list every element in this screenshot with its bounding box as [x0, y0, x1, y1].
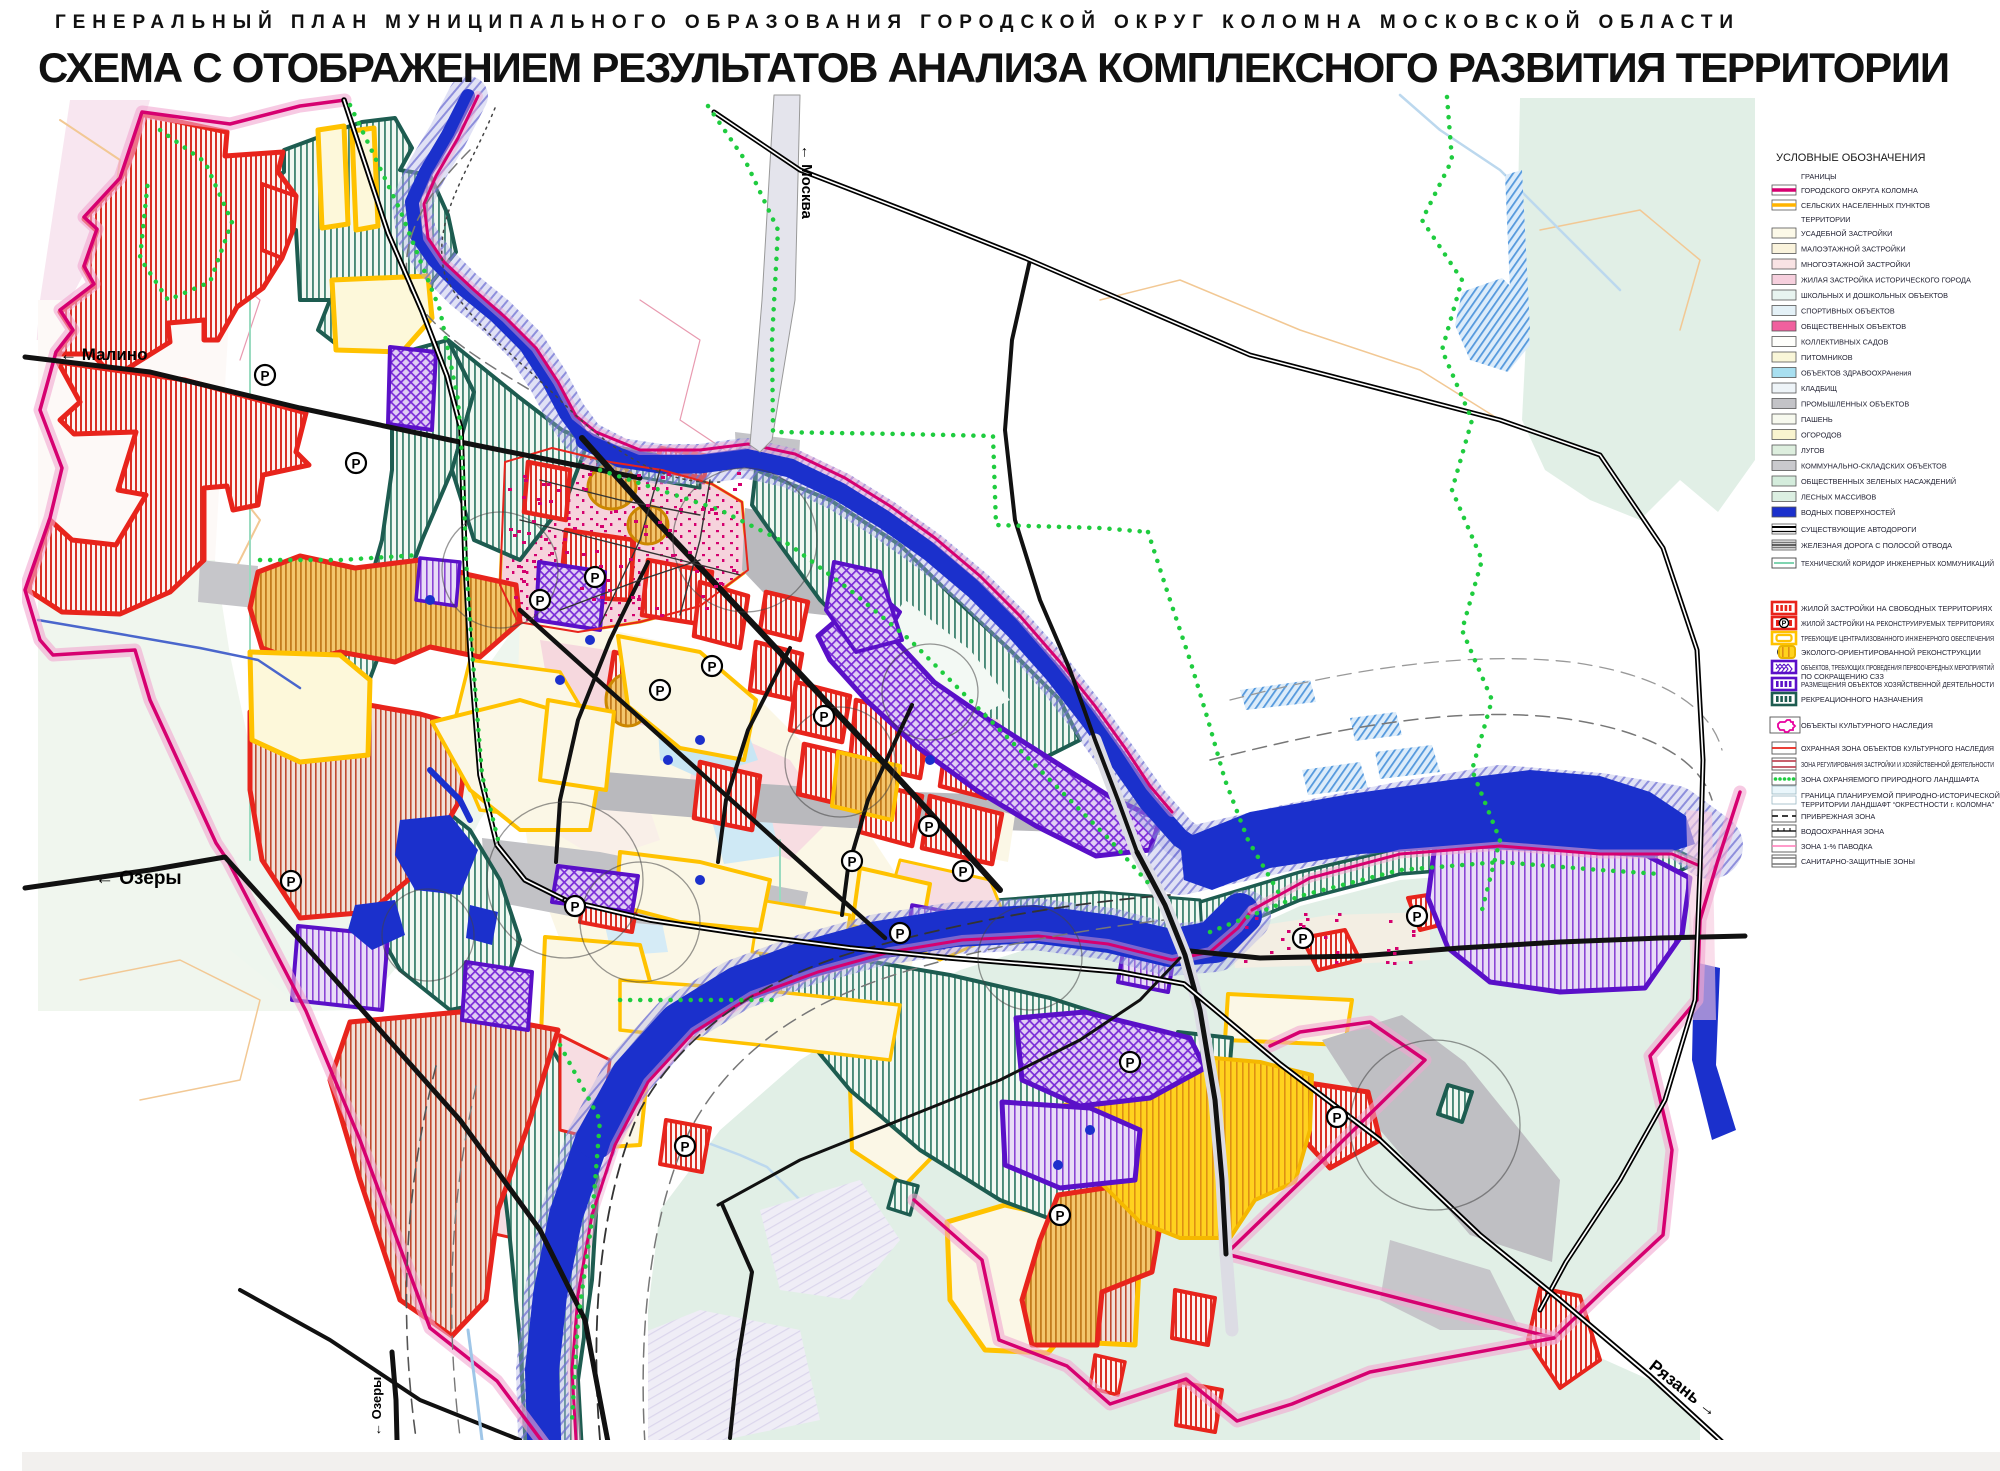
- svg-text:ШКОЛЬНЫХ И ДОШКОЛЬНЫХ ОБЪЕКТОВ: ШКОЛЬНЫХ И ДОШКОЛЬНЫХ ОБЪЕКТОВ: [1801, 291, 1948, 300]
- svg-text:← Малино: ← Малино: [60, 345, 147, 364]
- svg-text:ОГОРОДОВ: ОГОРОДОВ: [1801, 430, 1842, 439]
- svg-text:ЗОНА ОХРАНЯЕМОГО ПРИРОДНОГО ЛА: ЗОНА ОХРАНЯЕМОГО ПРИРОДНОГО ЛАНДШАФТА: [1801, 775, 1979, 784]
- svg-text:СЕЛЬСКИХ НАСЕЛЕННЫХ ПУНКТОВ: СЕЛЬСКИХ НАСЕЛЕННЫХ ПУНКТОВ: [1801, 201, 1930, 210]
- svg-text:ВОДНЫХ ПОВЕРХНОСТЕЙ: ВОДНЫХ ПОВЕРХНОСТЕЙ: [1801, 508, 1895, 517]
- svg-text:ПРИБРЕЖНАЯ ЗОНА: ПРИБРЕЖНАЯ ЗОНА: [1801, 812, 1875, 821]
- svg-text:ОХРАННАЯ ЗОНА ОБЪЕКТОВ КУЛЬТУР: ОХРАННАЯ ЗОНА ОБЪЕКТОВ КУЛЬТУРНОГО НАСЛЕ…: [1801, 744, 1994, 753]
- svg-text:ОБЪЕКТОВ ЗДРАВООХРАнения: ОБЪЕКТОВ ЗДРАВООХРАнения: [1801, 368, 1911, 377]
- svg-text:← Озеры: ← Озеры: [95, 868, 182, 889]
- svg-text:ЖЕЛЕЗНАЯ ДОРОГА С ПОЛОСОЙ ОТВО: ЖЕЛЕЗНАЯ ДОРОГА С ПОЛОСОЙ ОТВОДА: [1801, 541, 1952, 550]
- svg-text:ВОДООХРАННАЯ ЗОНА: ВОДООХРАННАЯ ЗОНА: [1801, 827, 1884, 836]
- svg-text:Р: Р: [1332, 1111, 1341, 1126]
- svg-text:Р: Р: [590, 571, 599, 586]
- svg-text:ПИТОМНИКОВ: ПИТОМНИКОВ: [1801, 353, 1853, 362]
- svg-text:Р: Р: [707, 660, 716, 675]
- svg-text:Р: Р: [847, 855, 856, 870]
- svg-text:Р: Р: [260, 369, 269, 384]
- svg-text:ПАШЕНЬ: ПАШЕНЬ: [1801, 415, 1833, 424]
- svg-text:Р: Р: [535, 594, 544, 609]
- svg-text:РАЗМЕЩЕНИЯ ОБЪЕКТОВ ХОЗЯЙСТВЕН: РАЗМЕЩЕНИЯ ОБЪЕКТОВ ХОЗЯЙСТВЕННОЙ ДЕЯТЕЛ…: [1801, 680, 1994, 689]
- svg-text:МАЛОЭТАЖНОЙ ЗАСТРОЙКИ: МАЛОЭТАЖНОЙ ЗАСТРОЙКИ: [1801, 244, 1906, 253]
- svg-text:Р: Р: [1298, 932, 1307, 947]
- svg-text:ГОРОДСКОГО ОКРУГА КОЛОМНА: ГОРОДСКОГО ОКРУГА КОЛОМНА: [1801, 186, 1918, 195]
- svg-text:РЕКРЕАЦИОННОГО НАЗНАЧЕНИЯ: РЕКРЕАЦИОННОГО НАЗНАЧЕНИЯ: [1801, 695, 1923, 704]
- svg-text:Р: Р: [286, 875, 295, 890]
- svg-text:Р: Р: [1125, 1056, 1134, 1071]
- svg-text:Р: Р: [655, 684, 664, 699]
- svg-text:УСАДЕБНОЙ ЗАСТРОЙКИ: УСАДЕБНОЙ ЗАСТРОЙКИ: [1801, 229, 1892, 238]
- svg-text:ТЕХНИЧЕСКИЙ КОРИДОР ИНЖЕНЕРНЫХ: ТЕХНИЧЕСКИЙ КОРИДОР ИНЖЕНЕРНЫХ КОММУНИКА…: [1801, 559, 1994, 568]
- svg-text:КОММУНАЛЬНО-СКЛАДСКИХ ОБЪЕКТОВ: КОММУНАЛЬНО-СКЛАДСКИХ ОБЪЕКТОВ: [1801, 461, 1947, 470]
- svg-text:Р: Р: [924, 820, 933, 835]
- svg-text:ОБЩЕСТВЕННЫХ ЗЕЛЕНЫХ НАСАЖДЕНИ: ОБЩЕСТВЕННЫХ ЗЕЛЕНЫХ НАСАЖДЕНИЙ: [1801, 477, 1956, 486]
- svg-text:ЗОНА 1-% ПАВОДКА: ЗОНА 1-% ПАВОДКА: [1801, 842, 1873, 851]
- svg-text:Р: Р: [570, 900, 579, 915]
- svg-text:ЖИЛОЙ ЗАСТРОЙКИ НА СВОБОДНЫХ Т: ЖИЛОЙ ЗАСТРОЙКИ НА СВОБОДНЫХ ТЕРРИТОРИЯХ: [1801, 604, 1992, 613]
- svg-text:ОБЩЕСТВЕННЫХ ОБЪЕКТОВ: ОБЩЕСТВЕННЫХ ОБЪЕКТОВ: [1801, 322, 1906, 331]
- svg-text:УСЛОВНЫЕ ОБОЗНАЧЕНИЯ: УСЛОВНЫЕ ОБОЗНАЧЕНИЯ: [1776, 152, 1926, 164]
- svg-text:КЛАДБИЩ: КЛАДБИЩ: [1801, 384, 1837, 393]
- svg-text:ЛЕСНЫХ МАССИВОВ: ЛЕСНЫХ МАССИВОВ: [1801, 492, 1876, 501]
- svg-text:ТЕРРИТОРИИ ЛАНДШАФТ “ОКРЕСТНОС: ТЕРРИТОРИИ ЛАНДШАФТ “ОКРЕСТНОСТИ г. КОЛО…: [1801, 800, 1995, 809]
- svg-text:← Озеры: ← Озеры: [369, 1377, 384, 1436]
- svg-text:ЭКОЛОГО-ОРИЕНТИРОВАННОЙ РЕКОНС: ЭКОЛОГО-ОРИЕНТИРОВАННОЙ РЕКОНСТРУКЦИИ: [1801, 648, 1981, 657]
- svg-text:Р: Р: [1055, 1209, 1064, 1224]
- svg-text:ПРОМЫШЛЕННЫХ ОБЪЕКТОВ: ПРОМЫШЛЕННЫХ ОБЪЕКТОВ: [1801, 399, 1909, 408]
- svg-text:КОЛЛЕКТИВНЫХ САДОВ: КОЛЛЕКТИВНЫХ САДОВ: [1801, 337, 1888, 346]
- svg-text:← Москва: ← Москва: [798, 145, 815, 220]
- svg-text:САНИТАРНО-ЗАЩИТНЫЕ ЗОНЫ: САНИТАРНО-ЗАЩИТНЫЕ ЗОНЫ: [1801, 857, 1915, 866]
- svg-text:ГРАНИЦЫ: ГРАНИЦЫ: [1801, 172, 1837, 181]
- svg-text:Р: Р: [1412, 910, 1421, 925]
- svg-text:ТРЕБУЮЩИЕ ЦЕНТРАЛИЗОВАННОГО ИН: ТРЕБУЮЩИЕ ЦЕНТРАЛИЗОВАННОГО ИНЖЕНЕРНОГО …: [1801, 634, 1994, 643]
- svg-text:ЛУГОВ: ЛУГОВ: [1801, 446, 1825, 455]
- svg-text:СПОРТИВНЫХ ОБЪЕКТОВ: СПОРТИВНЫХ ОБЪЕКТОВ: [1801, 306, 1895, 315]
- svg-text:ОБЪЕКТОВ, ТРЕБУЮЩИХ ПРОВЕДЕНИЯ: ОБЪЕКТОВ, ТРЕБУЮЩИХ ПРОВЕДЕНИЯ ПЕРВООЧЕР…: [1801, 663, 1994, 672]
- svg-text:СУЩЕСТВУЮЩИЕ АВТОДОРОГИ: СУЩЕСТВУЮЩИЕ АВТОДОРОГИ: [1801, 525, 1917, 534]
- svg-text:ГРАНИЦА ПЛАНИРУЕМОЙ ПРИРОДНО-И: ГРАНИЦА ПЛАНИРУЕМОЙ ПРИРОДНО-ИСТОРИЧЕСКО…: [1801, 791, 2000, 800]
- svg-text:Р: Р: [895, 927, 904, 942]
- svg-text:Р: Р: [351, 457, 360, 472]
- svg-text:ЗОНА РЕГУЛИРОВАНИЯ ЗАСТРОЙКИ И: ЗОНА РЕГУЛИРОВАНИЯ ЗАСТРОЙКИ И ХОЗЯЙСТВЕ…: [1801, 760, 1994, 769]
- svg-text:Р: Р: [680, 1140, 689, 1155]
- svg-text:Р: Р: [819, 710, 828, 725]
- svg-text:Р: Р: [958, 865, 967, 880]
- svg-text:Р: Р: [1782, 621, 1787, 628]
- svg-text:ЖИЛАЯ ЗАСТРОЙКА ИСТОРИЧЕСКОГО: ЖИЛАЯ ЗАСТРОЙКА ИСТОРИЧЕСКОГО ГОРОДА: [1801, 275, 1971, 284]
- svg-text:МНОГОЭТАЖНОЙ ЗАСТРОЙКИ: МНОГОЭТАЖНОЙ ЗАСТРОЙКИ: [1801, 260, 1910, 269]
- svg-text:ЖИЛОЙ ЗАСТРОЙКИ НА РЕКОНСТРУИР: ЖИЛОЙ ЗАСТРОЙКИ НА РЕКОНСТРУИРУЕМЫХ ТЕРР…: [1801, 619, 1994, 628]
- svg-text:ОБЪЕКТЫ КУЛЬТУРНОГО НАСЛЕДИЯ: ОБЪЕКТЫ КУЛЬТУРНОГО НАСЛЕДИЯ: [1801, 721, 1933, 730]
- svg-text:СХЕМА С ОТОБРАЖЕНИЕМ РЕЗУЛЬТАТ: СХЕМА С ОТОБРАЖЕНИЕМ РЕЗУЛЬТАТОВ АНАЛИЗА…: [38, 44, 1950, 91]
- svg-text:ТЕРРИТОРИИ: ТЕРРИТОРИИ: [1801, 215, 1850, 224]
